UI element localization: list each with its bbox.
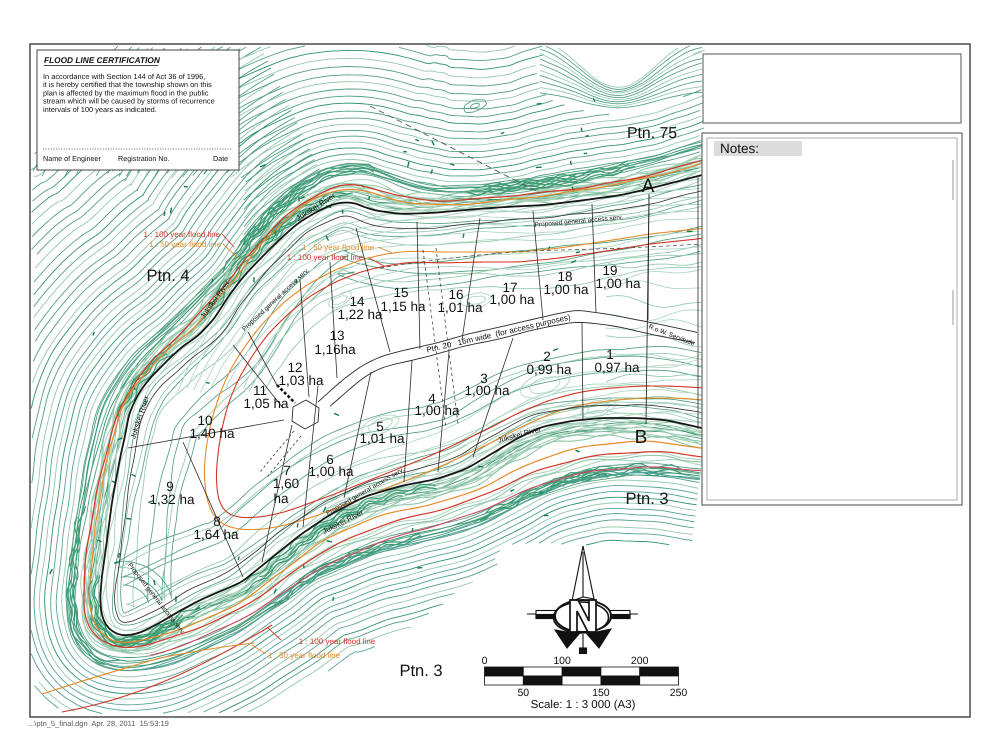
svg-text:Scale: 1 : 3 000 (A3): Scale: 1 : 3 000 (A3): [531, 699, 636, 711]
svg-text:0,99 ha: 0,99 ha: [526, 362, 572, 377]
svg-text:1,22 ha: 1,22 ha: [337, 307, 383, 322]
svg-text:1,00 ha: 1,00 ha: [489, 292, 535, 307]
svg-text:...\ptn_5_final.dgn Apr. 28,: ...\ptn_5_final.dgn Apr. 28, 2011 15:53:…: [28, 719, 169, 728]
svg-text:1,16ha: 1,16ha: [314, 342, 356, 357]
svg-text:Ptn. 4: Ptn. 4: [146, 267, 189, 285]
svg-text:1,32 ha: 1,32 ha: [149, 492, 195, 507]
svg-text:1,00 ha: 1,00 ha: [595, 276, 641, 291]
svg-text:1 : 100 year flood line: 1 : 100 year flood line: [299, 637, 376, 646]
svg-text:50: 50: [517, 687, 529, 699]
svg-text:1,15 ha: 1,15 ha: [380, 299, 426, 314]
svg-text:Ptn. 75: Ptn. 75: [627, 125, 677, 142]
svg-text:Ptn. 3: Ptn. 3: [625, 490, 668, 508]
svg-text:intervals of 100 years as indi: intervals of 100 years as indicated.: [43, 105, 157, 114]
svg-text:1 : 100 year flood line: 1 : 100 year flood line: [287, 253, 364, 262]
svg-text:1,00 ha: 1,00 ha: [308, 464, 354, 479]
svg-text:Date: Date: [213, 154, 228, 163]
svg-text:1 : 100 year flood line: 1 : 100 year flood line: [144, 230, 221, 239]
svg-text:0: 0: [482, 655, 488, 667]
svg-text:FLOOD LINE CERTIFICATION: FLOOD LINE CERTIFICATION: [44, 55, 161, 65]
svg-text:1,60: 1,60: [273, 476, 299, 491]
svg-text:Registration No.: Registration No.: [118, 154, 170, 163]
svg-text:0,97 ha: 0,97 ha: [594, 360, 640, 375]
svg-text:1,05 ha: 1,05 ha: [243, 396, 289, 411]
svg-text:1,01 ha: 1,01 ha: [359, 431, 405, 446]
svg-text:150: 150: [592, 687, 610, 699]
svg-text:1,00 ha: 1,00 ha: [414, 403, 460, 418]
svg-text:Ptn. 3: Ptn. 3: [399, 662, 442, 680]
svg-text:A: A: [642, 176, 655, 197]
svg-text:Notes:: Notes:: [720, 141, 759, 156]
svg-text:1,00 ha: 1,00 ha: [464, 383, 510, 398]
svg-text:Name of Engineer: Name of Engineer: [43, 154, 102, 163]
svg-text:1,01 ha: 1,01 ha: [437, 300, 483, 315]
svg-text:100: 100: [553, 655, 571, 667]
svg-text:B: B: [635, 427, 648, 448]
svg-text:1,40 ha: 1,40 ha: [189, 426, 235, 441]
svg-text:1 : 50 year flood line: 1 : 50 year flood line: [149, 240, 222, 249]
svg-text:13: 13: [329, 328, 344, 343]
svg-text:1,64 ha: 1,64 ha: [193, 527, 239, 542]
svg-text:1 : 50 year flood line: 1 : 50 year flood line: [302, 243, 375, 252]
svg-text:1 : 50 year flood line: 1 : 50 year flood line: [268, 651, 341, 660]
svg-text:ha: ha: [273, 491, 289, 506]
svg-text:200: 200: [631, 655, 649, 667]
svg-text:250: 250: [670, 687, 688, 699]
svg-text:1,03 ha: 1,03 ha: [278, 373, 324, 388]
svg-text:15: 15: [393, 285, 408, 300]
svg-text:1,00 ha: 1,00 ha: [543, 282, 589, 297]
